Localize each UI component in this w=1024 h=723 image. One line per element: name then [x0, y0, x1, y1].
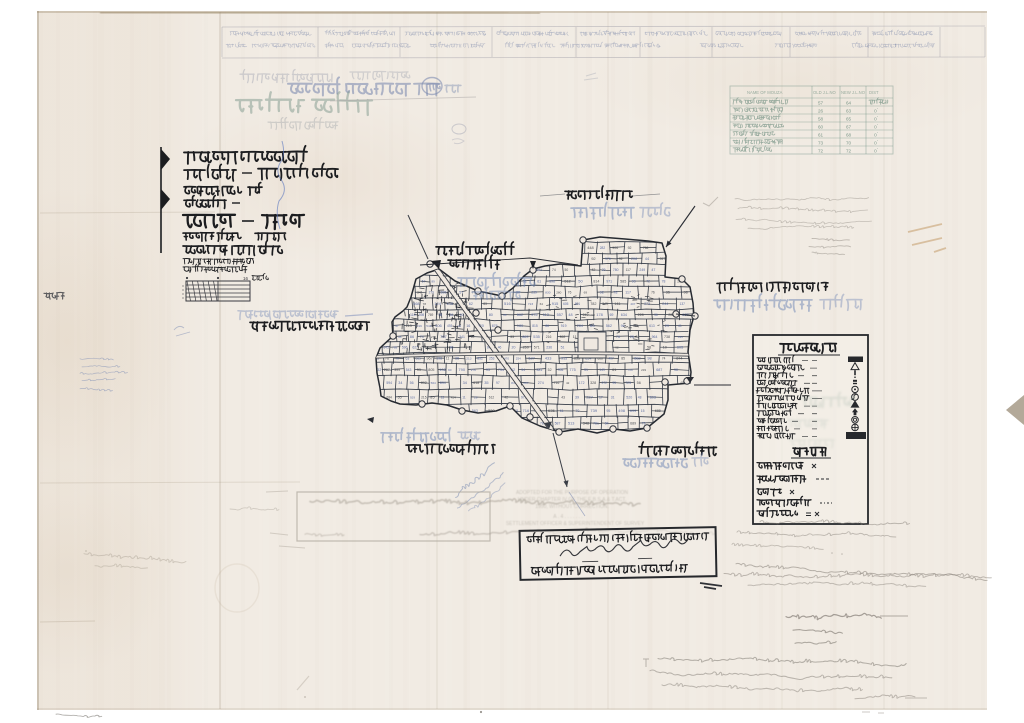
svg-text:57: 57 — [818, 101, 824, 106]
svg-text:56: 56 — [410, 381, 414, 385]
svg-text:272: 272 — [431, 335, 436, 339]
svg-text:61: 61 — [612, 367, 616, 372]
svg-text:273: 273 — [644, 302, 650, 306]
svg-text:161: 161 — [614, 302, 620, 306]
svg-text:70: 70 — [575, 409, 579, 413]
svg-text:348: 348 — [583, 421, 589, 425]
svg-text:73: 73 — [818, 141, 824, 146]
svg-text:769: 769 — [428, 313, 434, 317]
svg-text:535: 535 — [533, 334, 540, 339]
svg-text:434: 434 — [451, 395, 456, 399]
svg-text:239: 239 — [531, 291, 537, 295]
svg-text:882: 882 — [634, 357, 640, 361]
svg-text:65: 65 — [846, 117, 852, 122]
svg-text:50: 50 — [565, 268, 569, 272]
svg-text:627: 627 — [528, 356, 535, 361]
svg-text:687: 687 — [656, 368, 662, 372]
svg-text:74: 74 — [662, 357, 666, 361]
svg-text:282: 282 — [600, 246, 606, 250]
svg-text:113: 113 — [543, 312, 549, 317]
svg-text:43: 43 — [561, 395, 565, 399]
svg-text:723: 723 — [528, 302, 533, 306]
svg-text:587: 587 — [555, 421, 561, 425]
svg-text:216: 216 — [546, 335, 552, 339]
svg-text:53: 53 — [417, 368, 421, 372]
svg-text:20: 20 — [512, 346, 516, 350]
svg-text:15: 15 — [641, 409, 645, 413]
svg-text:o´: o´ — [874, 109, 879, 115]
svg-text:892: 892 — [421, 381, 427, 385]
svg-text:688: 688 — [655, 409, 661, 413]
svg-text:61: 61 — [560, 409, 564, 413]
svg-text:117: 117 — [625, 291, 631, 295]
svg-text:381: 381 — [536, 368, 542, 372]
svg-text:596: 596 — [549, 280, 555, 284]
svg-text:919: 919 — [561, 324, 567, 328]
svg-text:92: 92 — [628, 246, 632, 250]
svg-text:o´: o´ — [874, 133, 879, 139]
svg-text:699: 699 — [630, 409, 636, 413]
svg-text:244: 244 — [662, 302, 668, 306]
svg-text:72: 72 — [818, 149, 824, 154]
svg-text:341: 341 — [417, 291, 423, 295]
svg-text:64: 64 — [846, 101, 852, 106]
svg-text:814: 814 — [593, 280, 599, 284]
svg-text:54: 54 — [521, 368, 525, 372]
svg-text:775: 775 — [569, 368, 575, 372]
svg-text:72: 72 — [646, 280, 650, 284]
svg-text:279: 279 — [429, 291, 435, 295]
svg-text:780: 780 — [613, 268, 619, 272]
svg-text:85: 85 — [430, 394, 434, 399]
svg-text:906: 906 — [612, 246, 618, 250]
svg-text:498: 498 — [618, 408, 625, 413]
svg-text:95: 95 — [612, 381, 616, 385]
svg-text:613: 613 — [649, 324, 655, 328]
svg-text:o´: o´ — [874, 117, 879, 123]
svg-text:26: 26 — [818, 109, 824, 114]
svg-text:92: 92 — [591, 256, 596, 261]
svg-text:10: 10 — [663, 346, 667, 350]
svg-text:48: 48 — [568, 313, 572, 317]
svg-text:16: 16 — [466, 324, 470, 328]
svg-text:90: 90 — [448, 368, 452, 372]
svg-text:852: 852 — [477, 357, 483, 361]
svg-text:124: 124 — [434, 301, 441, 306]
svg-text:76: 76 — [616, 335, 620, 339]
svg-text:95: 95 — [606, 409, 610, 413]
svg-text:571: 571 — [534, 346, 540, 350]
svg-text:95: 95 — [398, 335, 402, 339]
svg-text:76: 76 — [568, 291, 572, 295]
svg-text:117: 117 — [626, 268, 631, 272]
svg-text:562: 562 — [606, 324, 612, 328]
svg-text:716: 716 — [523, 408, 530, 413]
svg-text:11: 11 — [462, 395, 466, 399]
svg-text:433: 433 — [545, 356, 552, 361]
svg-text:544: 544 — [426, 324, 431, 328]
svg-text:517: 517 — [660, 257, 666, 261]
svg-text:564: 564 — [431, 381, 436, 385]
svg-text:951: 951 — [558, 368, 564, 372]
svg-text:207: 207 — [523, 381, 528, 385]
svg-text:80: 80 — [489, 313, 493, 317]
svg-text:74: 74 — [552, 268, 556, 272]
svg-text:61: 61 — [537, 280, 541, 284]
svg-text:35: 35 — [484, 380, 488, 385]
svg-text:627: 627 — [412, 346, 418, 350]
svg-text:767: 767 — [440, 334, 447, 339]
svg-text:215: 215 — [421, 395, 427, 399]
svg-text:716: 716 — [554, 381, 560, 385]
svg-text:236: 236 — [546, 346, 552, 350]
svg-text:605: 605 — [677, 346, 683, 350]
svg-text:635: 635 — [548, 408, 555, 413]
svg-text:249: 249 — [639, 268, 645, 272]
svg-text:137: 137 — [680, 302, 686, 306]
svg-text:98: 98 — [647, 357, 651, 361]
svg-text:213: 213 — [466, 357, 471, 361]
svg-text:512: 512 — [564, 280, 570, 284]
svg-text:83: 83 — [590, 323, 595, 328]
svg-text:345: 345 — [602, 302, 608, 306]
svg-text:738: 738 — [664, 335, 670, 339]
svg-text:180: 180 — [517, 324, 523, 328]
svg-text:395: 395 — [440, 291, 446, 295]
svg-text:276: 276 — [471, 368, 476, 372]
svg-text:668: 668 — [413, 302, 419, 306]
svg-text:64: 64 — [540, 302, 544, 306]
svg-text:520: 520 — [626, 395, 632, 399]
svg-text:975: 975 — [531, 313, 537, 317]
svg-text:689: 689 — [630, 421, 636, 425]
svg-text:249: 249 — [583, 313, 589, 317]
svg-text:448: 448 — [587, 245, 594, 250]
svg-text:118: 118 — [410, 313, 416, 317]
svg-text:DIST: DIST — [869, 90, 879, 95]
svg-text:34: 34 — [398, 381, 402, 385]
svg-text:585: 585 — [620, 280, 626, 284]
svg-text:55: 55 — [398, 395, 402, 399]
svg-text:280: 280 — [556, 291, 561, 295]
svg-text:92: 92 — [600, 291, 604, 295]
svg-text:805: 805 — [428, 368, 434, 372]
svg-text:97: 97 — [496, 381, 500, 385]
svg-text:145: 145 — [447, 302, 453, 306]
svg-text:13: 13 — [441, 395, 445, 399]
svg-text:92: 92 — [619, 257, 623, 261]
svg-text:406: 406 — [435, 323, 442, 328]
svg-text:594: 594 — [386, 381, 392, 385]
svg-text:96: 96 — [503, 313, 507, 317]
svg-text:259: 259 — [523, 346, 529, 350]
svg-text:29: 29 — [474, 395, 478, 399]
svg-text:95: 95 — [486, 368, 490, 372]
svg-text:o´: o´ — [874, 125, 879, 131]
svg-text:612: 612 — [489, 395, 495, 399]
svg-text:51: 51 — [561, 346, 565, 350]
svg-text:801: 801 — [575, 302, 581, 306]
svg-text:21: 21 — [458, 324, 462, 328]
svg-text:228: 228 — [638, 313, 644, 317]
svg-text:618: 618 — [473, 381, 479, 385]
svg-text:373: 373 — [633, 324, 639, 328]
svg-text:172: 172 — [579, 381, 585, 385]
svg-text:SETTLEMENT OFFICER & SUPERINTE: SETTLEMENT OFFICER & SUPERINTENDENT OF S… — [506, 521, 645, 527]
svg-text:372: 372 — [602, 381, 608, 385]
svg-text:36: 36 — [654, 313, 658, 317]
svg-text:766: 766 — [643, 246, 649, 250]
svg-text:52: 52 — [548, 368, 552, 372]
svg-text:328: 328 — [590, 381, 596, 385]
svg-text:57: 57 — [459, 290, 464, 295]
svg-text:96: 96 — [621, 324, 625, 328]
svg-text:69: 69 — [471, 335, 475, 339]
svg-text:84: 84 — [605, 421, 609, 425]
svg-text:69: 69 — [584, 291, 588, 295]
svg-text:42: 42 — [566, 381, 570, 385]
svg-text:11: 11 — [573, 334, 577, 339]
svg-text:725: 725 — [625, 381, 631, 385]
svg-text:89: 89 — [432, 280, 436, 284]
svg-text:894: 894 — [440, 381, 446, 385]
svg-text:86: 86 — [410, 334, 414, 339]
svg-text:543: 543 — [406, 368, 412, 372]
svg-text:31: 31 — [611, 395, 615, 399]
svg-text:47: 47 — [651, 268, 655, 272]
svg-text:35: 35 — [455, 357, 459, 361]
svg-text:78: 78 — [613, 291, 617, 295]
svg-text:714: 714 — [627, 368, 632, 372]
svg-text:48: 48 — [638, 395, 642, 399]
svg-text:971: 971 — [606, 280, 612, 284]
svg-text:41: 41 — [678, 324, 682, 328]
svg-text:976: 976 — [605, 257, 611, 261]
svg-text:407: 407 — [630, 302, 635, 306]
svg-text:34: 34 — [463, 381, 467, 385]
svg-text:62: 62 — [615, 346, 619, 350]
svg-text:60: 60 — [460, 313, 464, 317]
svg-text:634: 634 — [621, 313, 627, 317]
svg-text:OLD J.L.NO: OLD J.L.NO — [813, 90, 837, 95]
svg-text:274: 274 — [538, 381, 544, 385]
svg-text:830: 830 — [545, 291, 550, 295]
svg-text:44: 44 — [645, 257, 649, 261]
svg-text:284: 284 — [577, 324, 583, 328]
svg-text:50: 50 — [578, 279, 583, 284]
svg-text:782: 782 — [590, 302, 596, 306]
svg-text:58: 58 — [674, 368, 678, 372]
svg-text:929: 929 — [410, 395, 415, 399]
svg-text:605: 605 — [563, 302, 569, 306]
svg-text:76: 76 — [651, 291, 655, 295]
svg-text:913: 913 — [561, 357, 567, 361]
svg-text:39: 39 — [575, 395, 579, 399]
svg-text:233: 233 — [641, 368, 646, 372]
svg-text:287: 287 — [384, 368, 390, 372]
svg-text:61: 61 — [818, 133, 824, 138]
svg-text:319: 319 — [417, 324, 422, 328]
svg-text:35: 35 — [666, 291, 670, 295]
svg-text:557: 557 — [557, 312, 564, 317]
svg-text:80: 80 — [450, 346, 454, 350]
svg-text:79: 79 — [642, 421, 646, 425]
svg-text:93: 93 — [632, 280, 636, 284]
svg-text:57: 57 — [422, 280, 426, 284]
svg-text:196: 196 — [436, 357, 442, 361]
svg-text:227: 227 — [586, 394, 593, 399]
svg-text:86: 86 — [545, 324, 549, 328]
svg-text:497: 497 — [609, 357, 615, 361]
svg-text:841: 841 — [536, 268, 542, 272]
svg-text:25: 25 — [630, 335, 634, 339]
svg-text:516: 516 — [504, 301, 511, 306]
svg-text:113: 113 — [406, 324, 412, 328]
svg-text:11: 11 — [446, 357, 450, 361]
svg-text:46: 46 — [498, 346, 502, 350]
svg-text:102: 102 — [439, 367, 446, 372]
svg-text:545: 545 — [383, 346, 389, 350]
svg-text:97: 97 — [395, 324, 399, 328]
svg-text:603: 603 — [650, 395, 656, 399]
svg-text:85: 85 — [621, 357, 625, 361]
svg-text:598: 598 — [419, 313, 425, 317]
svg-text:734: 734 — [498, 368, 504, 372]
svg-text:31: 31 — [584, 368, 588, 372]
svg-text:17: 17 — [599, 395, 603, 399]
svg-text:60: 60 — [818, 125, 824, 130]
svg-text:964: 964 — [652, 335, 658, 339]
svg-text:493: 493 — [447, 324, 453, 328]
svg-text:NEW J.L.NO: NEW J.L.NO — [841, 90, 866, 95]
svg-text:o´: o´ — [874, 141, 879, 147]
svg-text:74: 74 — [420, 335, 424, 339]
svg-text:o´: o´ — [874, 149, 879, 155]
svg-text:29: 29 — [665, 323, 669, 328]
svg-text:84: 84 — [450, 313, 454, 317]
svg-text:789: 789 — [392, 346, 397, 350]
svg-text:29: 29 — [602, 268, 606, 272]
svg-text:42: 42 — [504, 395, 508, 399]
svg-text:42: 42 — [591, 268, 595, 272]
svg-text:70: 70 — [846, 141, 852, 146]
svg-text:869: 869 — [522, 335, 528, 339]
svg-text:874: 874 — [676, 357, 682, 361]
svg-text:862: 862 — [560, 335, 566, 339]
svg-text:58: 58 — [818, 117, 824, 122]
svg-text:815: 815 — [532, 324, 538, 328]
svg-text:NAME OF MOUZA: NAME OF MOUZA — [747, 90, 783, 95]
svg-text:399: 399 — [394, 368, 400, 372]
svg-text:781: 781 — [593, 421, 599, 425]
svg-text:A . 4 . . . . . . .: A . 4 . . . . . . . — [553, 514, 582, 520]
svg-text:254: 254 — [516, 357, 521, 361]
svg-text:149: 149 — [599, 368, 605, 372]
svg-text:63: 63 — [846, 109, 852, 114]
svg-text:208: 208 — [631, 257, 637, 261]
svg-text:178: 178 — [596, 312, 603, 317]
svg-text:915: 915 — [552, 301, 559, 306]
svg-text:69: 69 — [610, 313, 614, 317]
svg-text:341: 341 — [459, 335, 465, 339]
svg-text:58: 58 — [647, 346, 651, 350]
svg-text:72: 72 — [846, 149, 852, 154]
svg-text:78: 78 — [662, 280, 666, 284]
svg-text:33: 33 — [510, 335, 514, 339]
svg-text:ADOPTED FOR THE PURPOSE OF OPE: ADOPTED FOR THE PURPOSE OF OPERATION — [516, 490, 628, 496]
svg-text:78: 78 — [423, 302, 427, 306]
svg-text:662: 662 — [517, 312, 524, 317]
svg-text:98: 98 — [684, 291, 688, 295]
svg-text:587: 587 — [425, 345, 432, 350]
svg-text:739: 739 — [590, 408, 597, 413]
svg-text:253: 253 — [489, 357, 495, 361]
svg-text:1950, WITHOUT CORRECTION.: 1950, WITHOUT CORRECTION. — [535, 504, 609, 510]
svg-text:56: 56 — [637, 381, 641, 385]
svg-text:790: 790 — [458, 367, 465, 372]
svg-text:62: 62 — [469, 302, 473, 306]
svg-text:83: 83 — [483, 302, 487, 306]
svg-text:68: 68 — [846, 133, 852, 138]
svg-text:67: 67 — [846, 125, 852, 130]
svg-text:596: 596 — [402, 346, 408, 350]
svg-text:833: 833 — [678, 335, 683, 339]
svg-text:513: 513 — [568, 421, 574, 425]
svg-text:55: 55 — [439, 313, 443, 317]
svg-text:16: 16 — [243, 276, 249, 281]
